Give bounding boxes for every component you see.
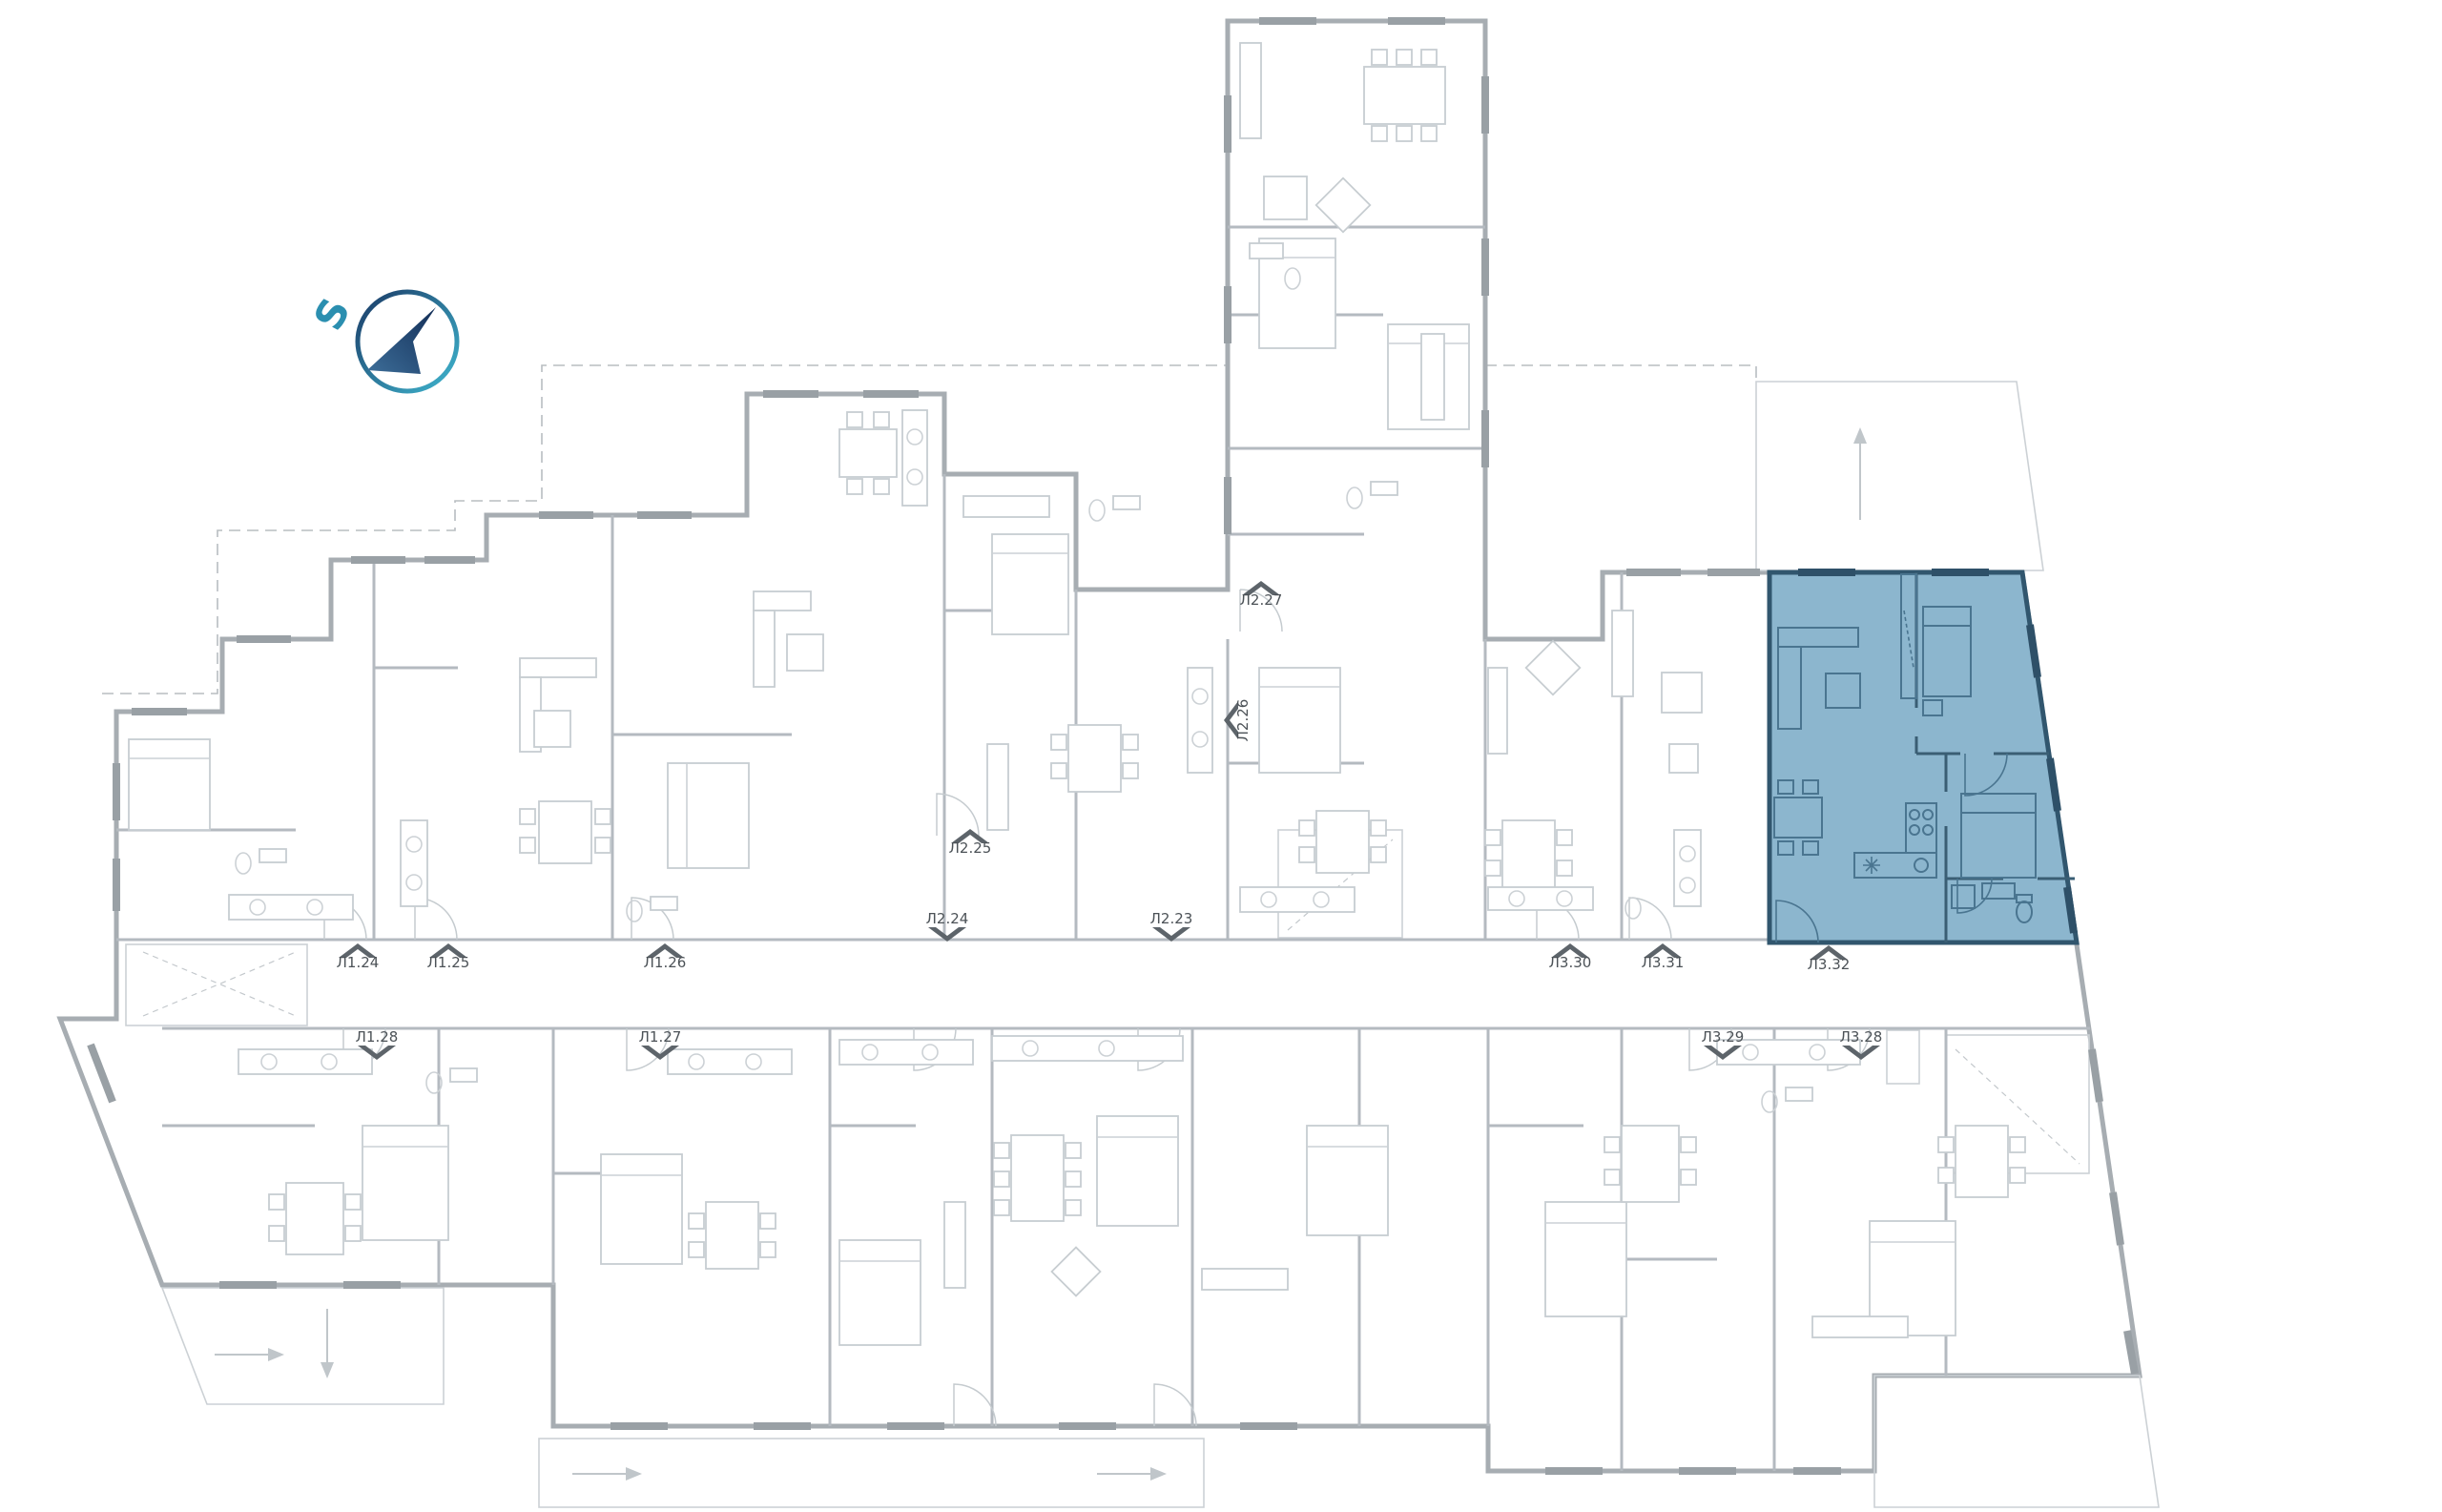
bed — [362, 1126, 448, 1240]
svg-text:Л1.24: Л1.24 — [337, 954, 380, 971]
bed — [1545, 1202, 1626, 1316]
sofa — [1202, 1269, 1288, 1290]
kitchen-counter — [401, 820, 427, 906]
floor-plan: Л1.24 Л1.25 Л1.26 Л1.28 Л1.27 Л2.25 Л2.2… — [0, 0, 2442, 1512]
svg-text:Л3.28: Л3.28 — [1840, 1028, 1883, 1046]
bed — [839, 1240, 921, 1345]
svg-text:Л2.23: Л2.23 — [1150, 910, 1193, 927]
wardrobe — [963, 496, 1049, 517]
svg-text:Л2.24: Л2.24 — [926, 910, 969, 927]
kitchen-counter — [1188, 668, 1212, 773]
kitchen-counter — [229, 895, 353, 920]
svg-text:Л1.27: Л1.27 — [639, 1028, 682, 1046]
svg-text:Л3.30: Л3.30 — [1549, 954, 1592, 971]
kitchen-counter — [668, 1049, 792, 1074]
svg-text:Л3.31: Л3.31 — [1642, 954, 1685, 971]
kitchen-counter — [839, 1040, 973, 1065]
bed — [668, 763, 749, 868]
svg-text:Л1.26: Л1.26 — [644, 954, 687, 971]
balcony-left — [162, 1288, 444, 1404]
svg-text:Л2.27: Л2.27 — [1240, 591, 1283, 609]
compass-icon: S — [304, 290, 457, 391]
svg-text:Л1.28: Л1.28 — [356, 1028, 399, 1046]
kitchen-counter — [992, 1036, 1183, 1061]
kitchen-counter — [1674, 830, 1701, 906]
wardrobe — [1421, 334, 1444, 420]
sofa — [944, 1202, 965, 1288]
bed — [129, 739, 210, 830]
svg-text:Л2.25: Л2.25 — [949, 839, 992, 857]
kitchen-counter — [1240, 887, 1355, 912]
bed — [1307, 1126, 1388, 1235]
svg-text:Л1.25: Л1.25 — [427, 954, 470, 971]
sofa — [1812, 1316, 1908, 1337]
sofa — [987, 744, 1008, 830]
sofa — [1488, 668, 1507, 754]
balcony-middle — [539, 1439, 1204, 1507]
terrace-hatched — [1756, 382, 2043, 570]
svg-text:Л2.26: Л2.26 — [1234, 699, 1252, 742]
bathroom-fixtures — [1089, 496, 1140, 521]
svg-text:Л3.29: Л3.29 — [1702, 1028, 1745, 1046]
svg-text:Л3.32: Л3.32 — [1808, 956, 1851, 973]
wardrobe — [1612, 611, 1633, 696]
balcony-right — [1874, 1376, 2159, 1507]
compass-needle — [367, 307, 436, 374]
kitchen-counter — [1488, 887, 1593, 910]
bed — [601, 1154, 682, 1264]
kitchen-counter — [238, 1049, 372, 1074]
compass-letter: S — [304, 290, 359, 338]
bed — [1259, 668, 1340, 773]
bed — [992, 534, 1068, 634]
dining-table — [994, 1135, 1081, 1221]
bed — [1097, 1116, 1178, 1226]
highlighted-apartment — [1769, 572, 2077, 942]
dining-table — [1364, 50, 1445, 141]
kitchen-counter — [902, 410, 927, 506]
